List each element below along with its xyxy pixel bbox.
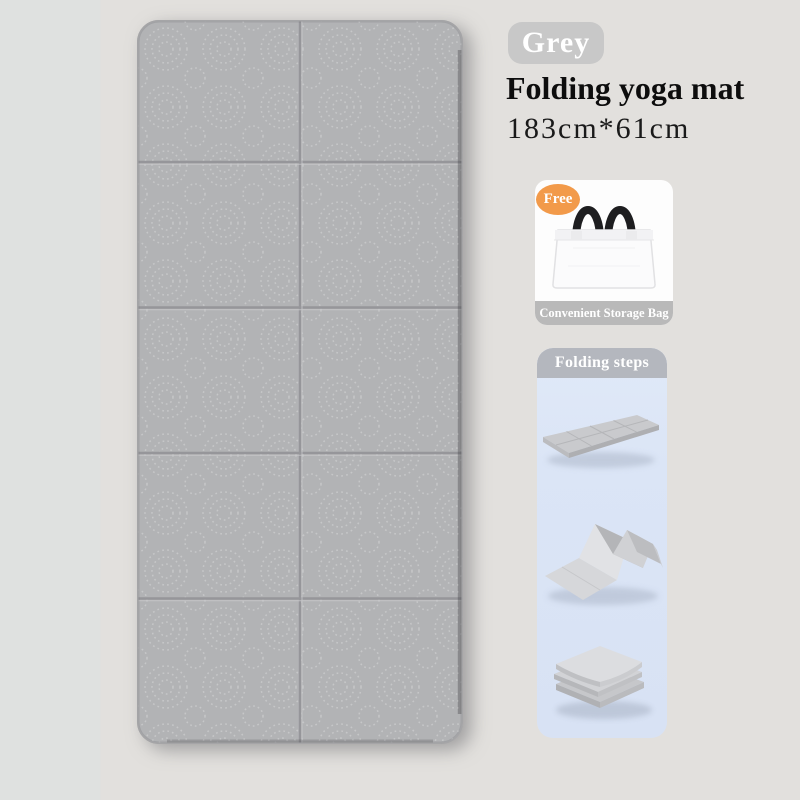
freebie-caption-banner: Convenient Storage Bag <box>535 301 673 325</box>
folding-steps-title: Folding steps <box>555 354 649 372</box>
yoga-mat-image <box>137 20 463 744</box>
freebie-card: Free Convenient Storage Bag <box>535 180 673 325</box>
folding-steps-header: Folding steps <box>537 348 667 378</box>
freebie-caption-label: Convenient Storage Bag <box>539 306 668 321</box>
fully-folded-stack-icon <box>542 636 658 724</box>
product-image-card: Grey Folding yoga mat 183cm*61cm Free Co… <box>0 0 800 800</box>
free-badge: Free <box>536 184 580 215</box>
product-title: Folding yoga mat <box>506 70 786 107</box>
color-variant-badge: Grey <box>508 22 604 64</box>
free-badge-label: Free <box>544 191 573 208</box>
product-size: 183cm*61cm <box>507 112 690 146</box>
folding-steps-panel: Folding steps <box>537 348 667 738</box>
yoga-mat-graphic <box>137 20 463 744</box>
flat-unfolded-mat-icon <box>539 405 665 477</box>
accordion-half-folded-mat-icon <box>539 508 665 610</box>
color-variant-label: Grey <box>522 26 590 60</box>
